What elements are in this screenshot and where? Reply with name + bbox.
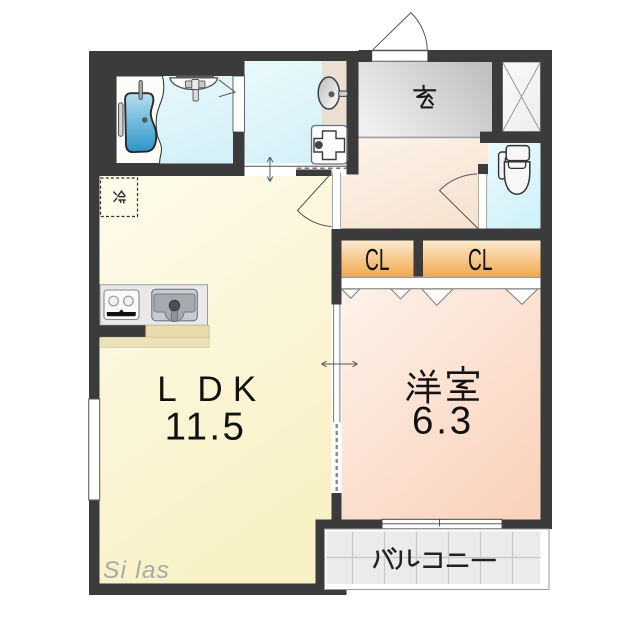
svg-text:CL: CL [365,243,390,277]
svg-text:CL: CL [468,243,493,277]
svg-text:D: D [197,370,222,409]
svg-text:K: K [233,370,256,409]
svg-text:L: L [157,370,176,409]
svg-text:6.3: 6.3 [412,400,474,443]
svg-text:11.5: 11.5 [165,406,247,449]
svg-text:Si las: Si las [103,557,170,584]
